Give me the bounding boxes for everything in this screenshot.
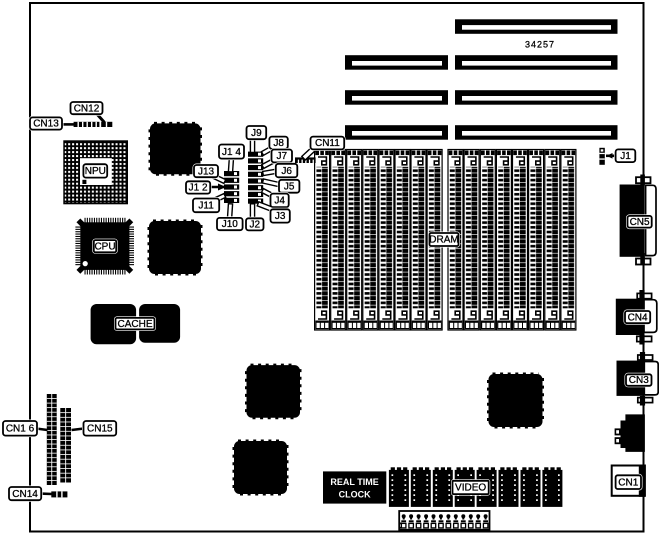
svg-text:J8: J8 <box>273 138 284 149</box>
svg-text:J3: J3 <box>275 211 286 222</box>
svg-text:J1 4: J1 4 <box>222 147 241 158</box>
svg-text:J10: J10 <box>222 219 239 230</box>
svg-text:J11: J11 <box>198 201 214 212</box>
svg-text:CPU: CPU <box>94 241 115 252</box>
svg-text:J5: J5 <box>284 181 295 192</box>
svg-text:DRAM: DRAM <box>429 235 458 246</box>
svg-text:CN5: CN5 <box>630 217 650 228</box>
svg-text:CN12: CN12 <box>74 103 100 114</box>
svg-text:J9: J9 <box>251 128 262 139</box>
svg-text:CN3: CN3 <box>629 375 649 386</box>
svg-text:REAL TIME: REAL TIME <box>330 477 378 487</box>
svg-text:CN1: CN1 <box>618 477 638 488</box>
svg-text:CN1 6: CN1 6 <box>6 424 35 435</box>
svg-text:CN13: CN13 <box>33 119 59 130</box>
svg-text:CLOCK: CLOCK <box>339 490 371 500</box>
svg-text:J13: J13 <box>198 166 215 177</box>
svg-text:34257: 34257 <box>525 40 555 50</box>
svg-text:CN15: CN15 <box>87 424 113 435</box>
svg-text:NPU: NPU <box>85 166 106 177</box>
svg-text:J6: J6 <box>281 166 292 177</box>
svg-text:VIDEO: VIDEO <box>455 483 486 494</box>
svg-text:J2: J2 <box>250 220 261 231</box>
svg-text:CACHE: CACHE <box>117 319 152 330</box>
svg-text:J1 2: J1 2 <box>189 183 208 194</box>
svg-text:CN14: CN14 <box>12 489 38 500</box>
svg-text:CN4: CN4 <box>628 312 648 323</box>
svg-text:J4: J4 <box>274 196 285 207</box>
svg-text:J1: J1 <box>620 151 631 162</box>
svg-text:J7: J7 <box>277 151 288 162</box>
svg-text:CN11: CN11 <box>315 138 340 149</box>
